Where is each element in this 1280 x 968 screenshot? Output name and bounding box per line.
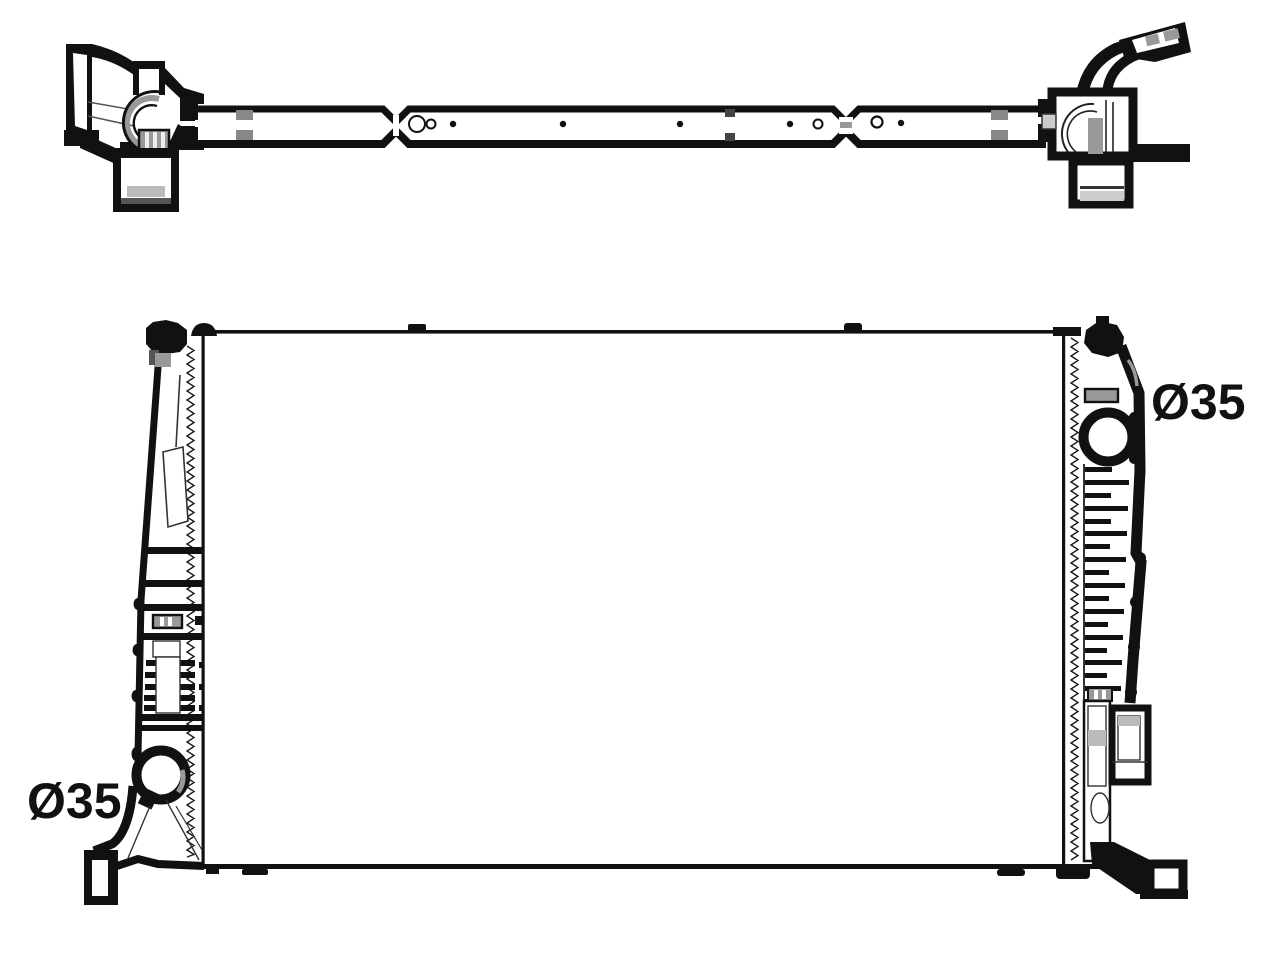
svg-text:Ø35: Ø35 <box>27 773 122 829</box>
svg-text:Ø35: Ø35 <box>1151 374 1246 430</box>
